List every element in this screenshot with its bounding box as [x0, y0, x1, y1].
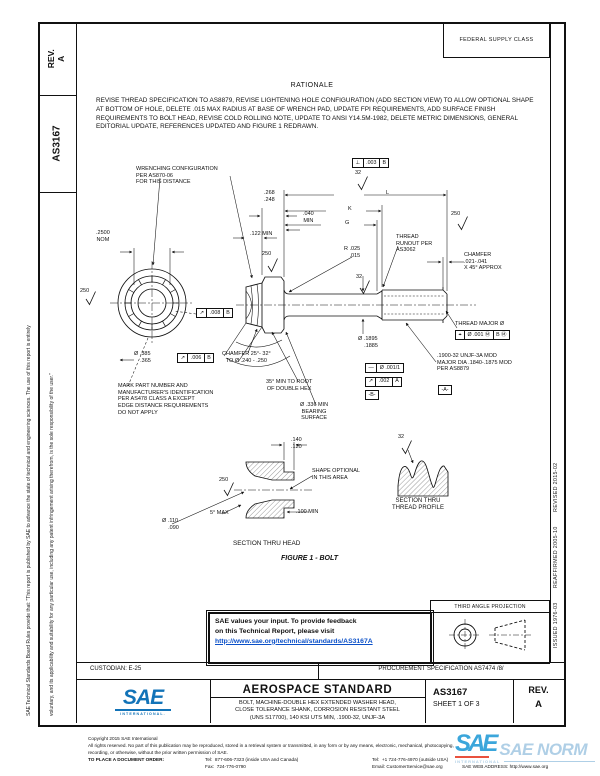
- fcf-value: Ø .001 Ⓜ: [465, 331, 494, 339]
- titleblock-rev-label: REV.: [513, 685, 564, 696]
- datum-a-flag: -A-: [438, 385, 452, 395]
- dim-140-120: .140 .120: [291, 437, 302, 450]
- tel-outside: Tel: +1 724-776-4970 (outside USA): [372, 757, 448, 763]
- fcf-symbol: ↗: [178, 354, 188, 362]
- dim-K: K: [348, 206, 352, 213]
- dim-040-min: .040 MIN: [303, 211, 314, 224]
- revision-history: ISSUED 1976-03 REAFFIRMED 2005-10 REVISE…: [553, 288, 559, 648]
- order-label: TO PLACE A DOCUMENT ORDER:: [88, 757, 164, 763]
- finish-32-profile: 32: [398, 434, 404, 441]
- finish-250-head: 250: [80, 288, 89, 295]
- finish-32-top: 32: [355, 170, 361, 177]
- procurement-spec: PROCUREMENT SPECIFICATION AS7474 /8/: [318, 666, 564, 673]
- asnum-box-divider: [38, 192, 76, 193]
- thread-major-label: THREAD MAJOR Ø: [455, 321, 504, 328]
- feedback-line-1: SAE values your input. To provide feedba…: [215, 617, 425, 627]
- fcf-symbol: ↗: [197, 309, 207, 317]
- fcf-value: .008: [207, 309, 223, 317]
- chamfer-right-note: CHAMFER .021-.041 X 45° APPROX: [464, 252, 502, 272]
- fcf-symbol: ↗: [366, 378, 376, 386]
- aerospace-standard-title: AEROSPACE STANDARD: [210, 683, 425, 697]
- dim-2500-nom: .2500 NOM: [96, 230, 110, 243]
- tel-inside: Tel: 877-606-7323 (inside USA and Canada…: [205, 757, 298, 763]
- fcf-symbol: ⌖: [456, 331, 465, 339]
- fcf-datum: A: [393, 378, 402, 386]
- rationale-title: RATIONALE: [76, 82, 548, 91]
- disclaimer-line-1: SAE Technical Standards Board Rules prov…: [26, 76, 34, 716]
- thread-spec-note: .1900-32 UNJF-3A MOD MAJOR DIA .1840-.18…: [437, 353, 512, 373]
- wrenching-note: WRENCHING CONFIGURATION PER AS870-06 FOR…: [136, 166, 218, 186]
- rights-line-2: recording, or otherwise, without the pri…: [88, 750, 228, 756]
- dim-268-248: .268 .248: [264, 190, 275, 203]
- fcf-runout-002: ↗ .002 A: [365, 377, 402, 387]
- finish-250-flange: 250: [262, 251, 271, 258]
- watermark-logo: SAE: [455, 733, 495, 755]
- bearing-surface-note: Ø .336 MIN BEARING SURFACE: [300, 402, 328, 422]
- dim-110-090: Ø .110 .090: [162, 518, 179, 531]
- doc-number: AS3167: [51, 125, 62, 161]
- fcf-position: ⌖ Ø .001 Ⓜ B Ⓜ: [455, 330, 510, 340]
- rights-line-1: All rights reserved. No part of this pub…: [88, 743, 454, 749]
- radius-values: .025 .015: [349, 246, 360, 259]
- fcf-symbol: —: [366, 364, 377, 372]
- dim-100-min: .100 MIN: [296, 509, 318, 516]
- rev-box: REV. A: [38, 22, 76, 95]
- rev-value: A: [57, 49, 67, 68]
- watermark-sub: INTERNATIONAL: [455, 759, 500, 764]
- dim-L: L: [386, 190, 389, 197]
- fcf-datum: B: [205, 354, 214, 362]
- fcf-datum: B: [380, 159, 389, 167]
- fcf-value: .002: [376, 378, 392, 386]
- thread-runout-note: THREAD RUNOUT PER AS3062: [396, 234, 432, 254]
- feedback-box: SAE values your input. To provide feedba…: [208, 612, 432, 664]
- fcf-runout-008: ↗ .008 B: [196, 308, 233, 318]
- date-strip-divider: [550, 22, 551, 662]
- sheet-number: SHEET 1 OF 3: [433, 701, 480, 710]
- dim-122-min: .122 MIN: [250, 231, 272, 238]
- copyright-line: Copyright 2015 SAE International: [88, 736, 158, 742]
- fsc-text: FEDERAL SUPPLY CLASS: [459, 37, 533, 43]
- email-line: Email: CustomerService@sae.org: [372, 764, 443, 770]
- standard-page: SAE Technical Standards Board Rules prov…: [0, 0, 600, 776]
- chamfer-left-note: CHAMFER 25°- 32° TO Ø .240 - .250: [222, 351, 271, 364]
- titleblock-top-line: [76, 662, 564, 663]
- standard-header-underline: [210, 697, 425, 698]
- dim-1895: Ø .1895 .1885: [358, 336, 378, 349]
- standard-subtitle: BOLT, MACHINE-DOUBLE HEX EXTENDED WASHER…: [212, 700, 423, 722]
- web-address: SAE WEB ADDRESS: http://www.sae.org: [462, 764, 548, 770]
- mark-part-note: MARK PART NUMBER AND MANUFACTURER'S IDEN…: [118, 383, 213, 417]
- fcf-value: Ø .001/1: [377, 364, 402, 372]
- projection-symbol: [431, 613, 547, 657]
- fcf-perpendicularity: ⊥ .003 B: [352, 158, 389, 168]
- hex-depth-note: 35° MIN TO ROOT OF DOUBLE HEX: [266, 379, 312, 392]
- finish-32-shank: 32: [356, 274, 362, 281]
- datum-b-flag: -B-: [365, 390, 379, 400]
- section-thru-head-caption: SECTION THRU HEAD: [233, 540, 300, 548]
- federal-supply-class-box: FEDERAL SUPPLY CLASS: [443, 22, 550, 58]
- dim-385: Ø .385 .365: [134, 351, 151, 364]
- fcf-symbol: ⊥: [353, 159, 364, 167]
- sae-logo-text: SAE: [123, 687, 163, 708]
- section-thru-thread-caption: SECTION THRU THREAD PROFILE: [392, 498, 444, 513]
- projection-box: THIRD ANGLE PROJECTION: [430, 600, 550, 664]
- radius-callout: R .025 .015: [344, 246, 360, 259]
- sae-logo: SAE INTERNATIONAL.: [76, 679, 210, 723]
- fax-line: Fax: 724-776-0790: [205, 764, 246, 770]
- finish-250-shank: 250: [451, 211, 460, 218]
- fcf-value: .006: [188, 354, 204, 362]
- number-cell-divider: [425, 679, 426, 723]
- standard-number: AS3167: [433, 687, 467, 699]
- finish-250-section: 250: [219, 477, 228, 484]
- rationale-body: REVISE THREAD SPECIFICATION TO AS8879, R…: [96, 97, 539, 132]
- dim-5deg-max: 5° MAX: [210, 510, 229, 517]
- figure-caption: FIGURE 1 - BOLT: [281, 555, 338, 564]
- fcf-value: .003: [364, 159, 380, 167]
- sae-norm-watermark: SAE SAE NORM INTERNATIONAL: [455, 733, 595, 764]
- sae-logo-sub: INTERNATIONAL.: [120, 712, 165, 716]
- fcf-datum: B Ⓜ: [494, 331, 509, 339]
- watermark-text: SAE NORM: [499, 741, 587, 758]
- projection-title: THIRD ANGLE PROJECTION: [431, 601, 549, 610]
- fcf-datum: B: [224, 309, 233, 317]
- feedback-link[interactable]: http://www.sae.org/technical/standards/A…: [215, 637, 425, 647]
- feedback-line-2: on this Technical Report, please visit: [215, 627, 425, 637]
- radius-letter: R: [344, 246, 348, 259]
- fcf-straightness: — Ø .001/1: [365, 363, 404, 373]
- shape-optional-note: SHAPE OPTIONAL IN THIS AREA: [312, 468, 360, 481]
- fcf-runout-006: ↗ .006 B: [177, 353, 214, 363]
- dim-G: G: [345, 220, 349, 227]
- doc-number-box: AS3167: [38, 95, 76, 192]
- custodian: CUSTODIAN: E-25: [90, 666, 141, 673]
- titleblock-rev-value: A: [513, 699, 564, 711]
